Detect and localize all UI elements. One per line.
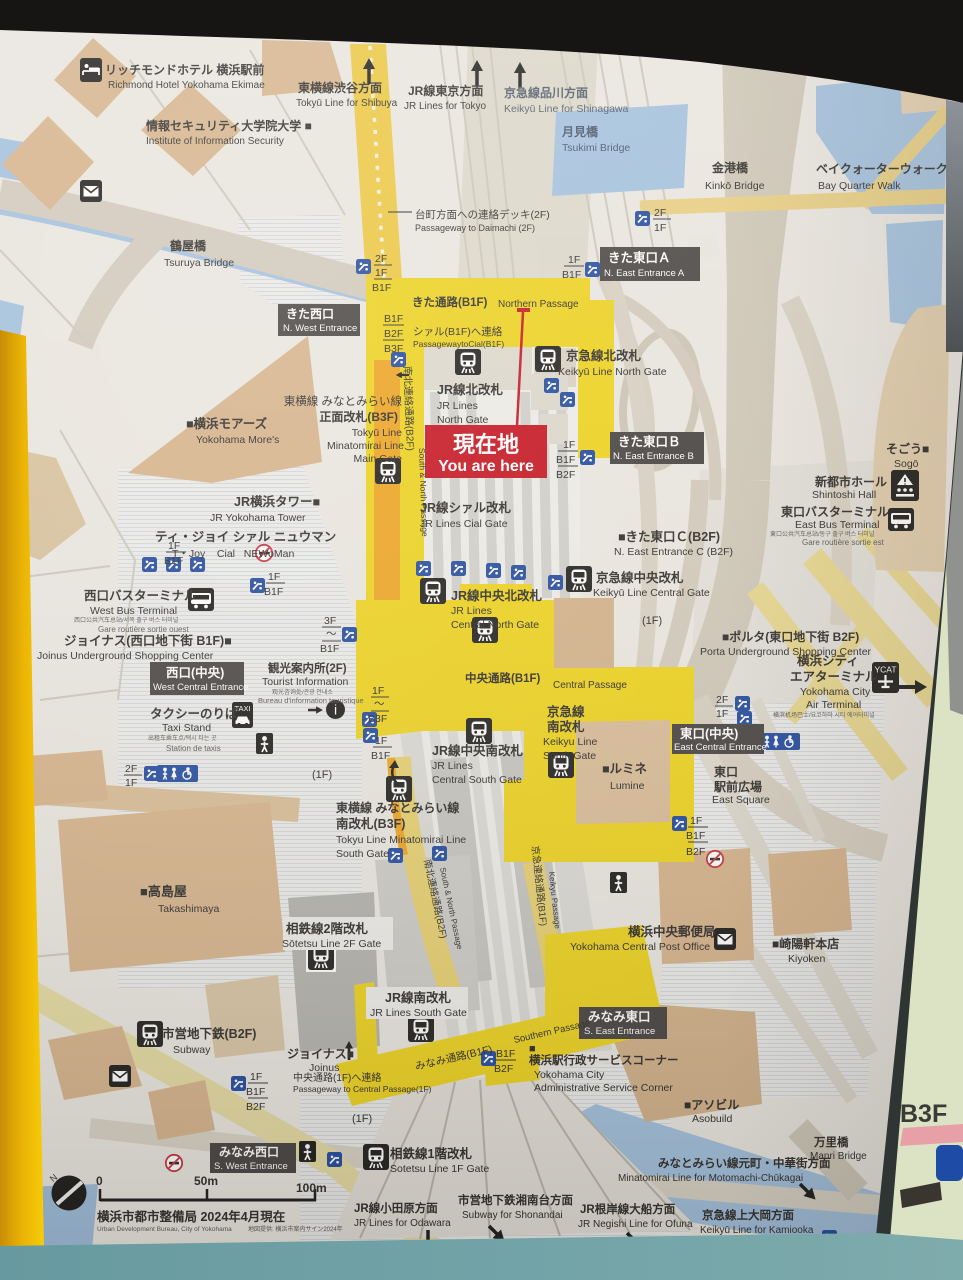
svg-text:B3F: B3F xyxy=(900,1100,947,1128)
